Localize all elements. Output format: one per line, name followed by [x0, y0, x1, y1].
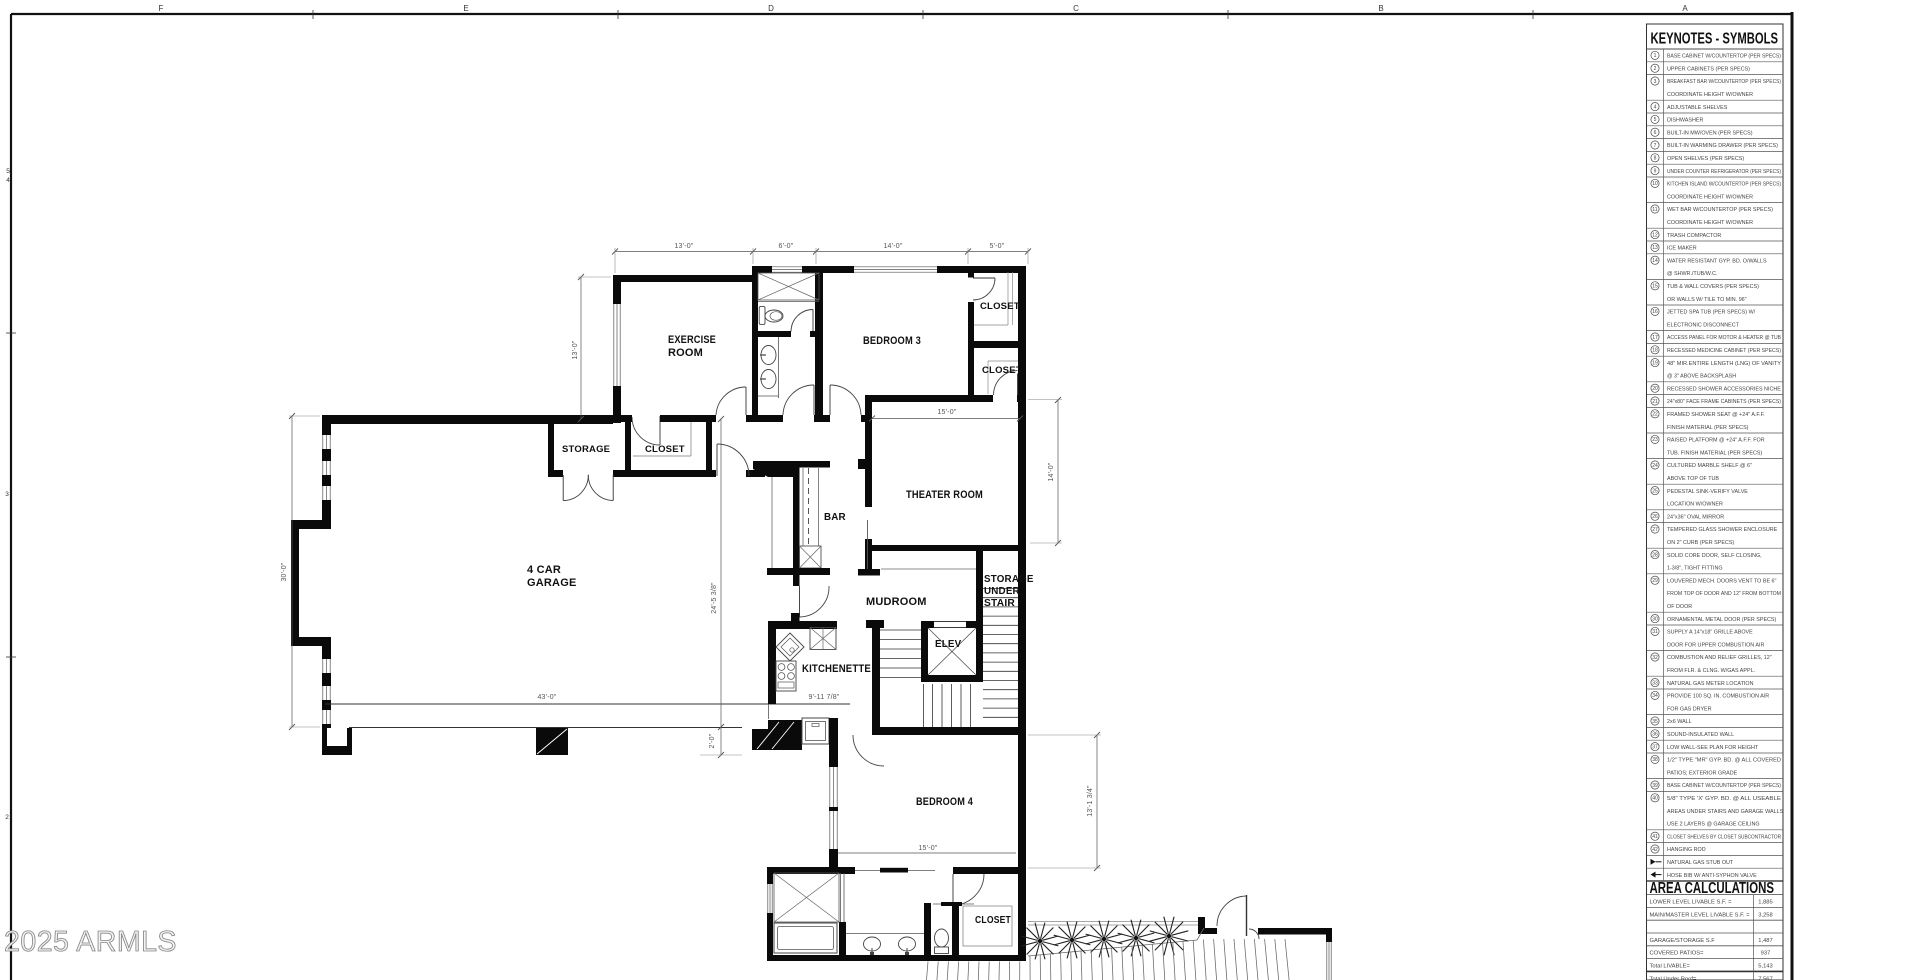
svg-text:5'-0": 5'-0": [990, 243, 1005, 250]
svg-text:24'-5 3/8": 24'-5 3/8": [711, 582, 718, 614]
svg-text:17: 17: [1652, 335, 1658, 341]
svg-text:11: 11: [1652, 207, 1657, 213]
svg-text:12: 12: [1652, 232, 1658, 238]
svg-text:PATIOS; EXTERIOR GRADE: PATIOS; EXTERIOR GRADE: [1667, 770, 1738, 776]
svg-text:39: 39: [1652, 783, 1658, 789]
svg-text:LOUVERED MECH. DOORS VENT TO B: LOUVERED MECH. DOORS VENT TO BE 6": [1667, 578, 1777, 584]
svg-text:13: 13: [1652, 245, 1658, 251]
svg-text:1: 1: [1654, 53, 1657, 59]
svg-text:OF DOOR: OF DOOR: [1667, 604, 1692, 610]
svg-text:ON 2" CURB (PER SPECS): ON 2" CURB (PER SPECS): [1667, 540, 1734, 546]
svg-text:LOCATION W/OWNER: LOCATION W/OWNER: [1667, 502, 1723, 508]
svg-text:ROOM: ROOM: [668, 347, 703, 359]
svg-text:E: E: [463, 4, 468, 13]
svg-text:43'-0": 43'-0": [537, 694, 556, 701]
svg-text:ADJUSTABLE SHELVES: ADJUSTABLE SHELVES: [1667, 105, 1728, 111]
svg-text:STAIR: STAIR: [984, 598, 1015, 609]
svg-text:B: B: [1378, 4, 1383, 13]
svg-text:4: 4: [1654, 104, 1657, 110]
svg-text:TUB. FINISH MATERIAL (PER SPEC: TUB. FINISH MATERIAL (PER SPECS): [1667, 450, 1762, 456]
svg-text:HANGING ROD: HANGING ROD: [1667, 847, 1706, 853]
svg-text:3,258: 3,258: [1758, 912, 1773, 918]
svg-text:A: A: [1682, 4, 1688, 13]
svg-text:29: 29: [1652, 578, 1658, 584]
svg-text:CLOSET SHELVES BY CLOSET SUBCO: CLOSET SHELVES BY CLOSET SUBCONTRACTOR: [1667, 834, 1781, 840]
svg-text:1/2" TYPE "MR" GYP. BD. @ ALL: 1/2" TYPE "MR" GYP. BD. @ ALL COVERED: [1667, 758, 1781, 764]
svg-text:FOR GAS DRYER: FOR GAS DRYER: [1667, 706, 1712, 712]
svg-text:ORNAMENTAL METAL DOOR (PER SPE: ORNAMENTAL METAL DOOR (PER SPECS): [1667, 617, 1777, 623]
svg-text:RAISED PLATFORM @ +24" A.F.F.: RAISED PLATFORM @ +24" A.F.F. FOR: [1667, 438, 1765, 444]
svg-text:NATURAL GAS METER LOCATION: NATURAL GAS METER LOCATION: [1667, 681, 1754, 687]
svg-text:STORAGE: STORAGE: [562, 444, 610, 455]
svg-text:24"x36" OVAL MIRROR: 24"x36" OVAL MIRROR: [1667, 514, 1724, 520]
svg-text:48" MIR.ENTIRE LENGTH (LNG) OF: 48" MIR.ENTIRE LENGTH (LNG) OF VANITY: [1667, 361, 1781, 367]
svg-text:38: 38: [1652, 757, 1658, 763]
svg-text:SOLID CORE DOOR, SELF CLOSING,: SOLID CORE DOOR, SELF CLOSING,: [1667, 553, 1762, 559]
svg-text:30'-0": 30'-0": [281, 562, 288, 581]
svg-text:UNDER COUNTER REFRIGERATOR (PE: UNDER COUNTER REFRIGERATOR (PER SPECS): [1667, 169, 1781, 175]
svg-text:Total LIVABLE=: Total LIVABLE=: [1650, 964, 1691, 970]
svg-text:5: 5: [1654, 117, 1657, 123]
svg-text:2'-0": 2'-0": [709, 733, 716, 748]
svg-text:KITCHEN ISLAND W/COUNTERTOP (P: KITCHEN ISLAND W/COUNTERTOP (PER SPECS): [1667, 182, 1781, 188]
svg-text:TUB & WALL COVERS (PER SPECS): TUB & WALL COVERS (PER SPECS): [1667, 284, 1759, 290]
svg-text:CLOSET: CLOSET: [975, 915, 1011, 926]
svg-text:GARAGE/STORAGE S.F: GARAGE/STORAGE S.F: [1650, 938, 1716, 944]
svg-text:15: 15: [1652, 284, 1658, 290]
svg-text:14'-0": 14'-0": [883, 243, 902, 250]
svg-text:2: 2: [5, 814, 9, 821]
svg-text:6: 6: [1654, 130, 1657, 136]
svg-text:5: 5: [6, 168, 10, 175]
svg-text:30: 30: [1652, 616, 1658, 622]
svg-text:MUDROOM: MUDROOM: [866, 596, 927, 608]
svg-text:20: 20: [1652, 386, 1658, 392]
svg-text:UPPER CABINETS (PER SPECS): UPPER CABINETS (PER SPECS): [1667, 66, 1750, 72]
svg-text:5,143: 5,143: [1758, 964, 1773, 970]
svg-text:TEMPERED GLASS SHOWER ENCLOSUR: TEMPERED GLASS SHOWER ENCLOSURE: [1667, 527, 1778, 533]
svg-text:4: 4: [6, 177, 10, 184]
svg-text:7,567: 7,567: [1758, 976, 1773, 980]
svg-text:41: 41: [1652, 834, 1658, 840]
svg-text:22: 22: [1652, 412, 1658, 418]
svg-text:OPEN SHELVES (PER SPECS): OPEN SHELVES (PER SPECS): [1667, 156, 1744, 162]
svg-text:CLOSET: CLOSET: [645, 444, 685, 455]
svg-text:BASE CABINET W/COUNTERTOP (PER: BASE CABINET W/COUNTERTOP (PER SPECS): [1667, 783, 1781, 789]
svg-text:COORDINATE HEIGHT W/OWNER: COORDINATE HEIGHT W/OWNER: [1667, 194, 1753, 200]
svg-text:AREAS UNDER STAIRS AND GARAGE: AREAS UNDER STAIRS AND GARAGE WALLS: [1667, 809, 1784, 815]
svg-text:SOUND-INSULATED WALL: SOUND-INSULATED WALL: [1667, 732, 1734, 738]
svg-text:13'-1 3/4": 13'-1 3/4": [1087, 785, 1094, 817]
svg-text:OR WALLS W/ TILE TO MIN. 96": OR WALLS W/ TILE TO MIN. 96": [1667, 297, 1747, 303]
svg-text:2025 ARMLS: 2025 ARMLS: [4, 926, 177, 958]
svg-text:COORDINATE HEIGHT W/OWNER: COORDINATE HEIGHT W/OWNER: [1667, 220, 1753, 226]
svg-text:6'-0": 6'-0": [779, 243, 794, 250]
svg-text:CLOSET: CLOSET: [982, 365, 1022, 376]
svg-text:RECESSED SHOWER ACCESSORIES NI: RECESSED SHOWER ACCESSORIES NICHE: [1667, 386, 1781, 392]
svg-text:PEDESTAL SINK-VERIFY VALVE: PEDESTAL SINK-VERIFY VALVE: [1667, 489, 1748, 495]
svg-text:9'-11 7/8": 9'-11 7/8": [809, 694, 840, 701]
svg-text:36: 36: [1652, 732, 1658, 738]
svg-text:4 CAR: 4 CAR: [527, 564, 561, 576]
svg-text:16: 16: [1652, 309, 1658, 315]
svg-text:@ 3" ABOVE BACKSPLASH: @ 3" ABOVE BACKSPLASH: [1667, 374, 1736, 380]
svg-text:24"x80" FACE FRAME CABINETS (P: 24"x80" FACE FRAME CABINETS (PER SPECS): [1667, 399, 1781, 405]
svg-text:25: 25: [1652, 488, 1658, 494]
svg-text:PROVIDE 100 SQ. IN. COMBUSTION: PROVIDE 100 SQ. IN. COMBUSTION AIR: [1667, 694, 1769, 700]
svg-text:F: F: [159, 4, 164, 13]
svg-text:COMBUSTION AND RELIEF GRILLES,: COMBUSTION AND RELIEF GRILLES, 12": [1667, 655, 1772, 661]
svg-text:TRASH COMPACTOR: TRASH COMPACTOR: [1667, 233, 1721, 239]
svg-text:1-3/8", TIGHT FITTING: 1-3/8", TIGHT FITTING: [1667, 566, 1723, 572]
svg-text:BEDROOM 4: BEDROOM 4: [916, 796, 974, 808]
svg-text:31: 31: [1652, 629, 1658, 635]
svg-text:1,487: 1,487: [1758, 938, 1773, 944]
svg-text:18: 18: [1652, 348, 1658, 354]
svg-text:35: 35: [1652, 719, 1658, 725]
svg-text:BUILT-IN MW/OVEN (PER SPECS): BUILT-IN MW/OVEN (PER SPECS): [1667, 130, 1753, 136]
svg-text:14: 14: [1652, 258, 1658, 264]
svg-text:7: 7: [1654, 143, 1657, 149]
svg-text:WET BAR W/COUNTERTOP (PER SPEC: WET BAR W/COUNTERTOP (PER SPECS): [1667, 207, 1773, 213]
svg-text:GARAGE: GARAGE: [527, 577, 576, 589]
svg-text:COORDINATE HEIGHT W/OWNER: COORDINATE HEIGHT W/OWNER: [1667, 92, 1753, 98]
svg-text:34: 34: [1652, 693, 1658, 699]
svg-text:5/8" TYPE 'X' GYP. BD. @ ALL U: 5/8" TYPE 'X' GYP. BD. @ ALL USEABLE: [1667, 796, 1781, 802]
svg-text:27: 27: [1652, 527, 1658, 533]
svg-text:DISHWASHER: DISHWASHER: [1667, 118, 1703, 124]
svg-text:15'-0": 15'-0": [918, 845, 937, 852]
svg-text:1,885: 1,885: [1758, 900, 1773, 906]
svg-text:LOWER LEVEL LIVABLE S.F. =: LOWER LEVEL LIVABLE S.F. =: [1650, 900, 1733, 906]
svg-text:JETTED SPA TUB (PER SPECS) W/: JETTED SPA TUB (PER SPECS) W/: [1667, 310, 1756, 316]
svg-text:33: 33: [1652, 680, 1658, 686]
svg-text:8: 8: [1654, 156, 1657, 162]
svg-text:DOOR FOR UPPER COMBUSTION AIR: DOOR FOR UPPER COMBUSTION AIR: [1667, 642, 1764, 648]
svg-text:BAR: BAR: [824, 512, 846, 523]
svg-text:SUPPLY A 14"x18" GRILLE ABOVE: SUPPLY A 14"x18" GRILLE ABOVE: [1667, 630, 1753, 636]
svg-text:937: 937: [1761, 951, 1771, 957]
svg-text:EXERCISE: EXERCISE: [668, 334, 716, 346]
svg-text:28: 28: [1652, 552, 1658, 558]
svg-text:ACCESS PANEL FOR MOTOR & HEATE: ACCESS PANEL FOR MOTOR & HEATER @ TUB: [1667, 335, 1781, 341]
svg-text:2: 2: [1654, 66, 1657, 72]
svg-text:@ SHWR./TUB/W.C.: @ SHWR./TUB/W.C.: [1667, 271, 1717, 277]
svg-text:42: 42: [1652, 847, 1658, 853]
svg-text:ELECTRONIC DISCONNECT: ELECTRONIC DISCONNECT: [1667, 322, 1740, 328]
svg-text:COVERED PATIOS=: COVERED PATIOS=: [1650, 951, 1705, 957]
svg-text:NATURAL GAS STUB OUT: NATURAL GAS STUB OUT: [1667, 860, 1734, 866]
svg-text:23: 23: [1652, 437, 1658, 443]
svg-text:RECESSED MEDICINE CABINET (PER: RECESSED MEDICINE CABINET (PER SPECS): [1667, 348, 1781, 354]
svg-text:3: 3: [5, 491, 9, 498]
svg-text:Total Under Roof=: Total Under Roof=: [1650, 976, 1697, 980]
svg-text:32: 32: [1652, 655, 1658, 661]
svg-text:24: 24: [1652, 463, 1658, 469]
svg-text:CLOSET: CLOSET: [980, 301, 1020, 312]
svg-text:CULTURED MARBLE SHELF @ 6": CULTURED MARBLE SHELF @ 6": [1667, 463, 1752, 469]
svg-text:13'-0": 13'-0": [674, 243, 693, 250]
svg-text:9: 9: [1654, 168, 1657, 174]
svg-text:37: 37: [1652, 744, 1658, 750]
svg-text:ELEV: ELEV: [935, 639, 962, 650]
svg-text:HOSE BIB W/ ANTI-SYPHON VALVE: HOSE BIB W/ ANTI-SYPHON VALVE: [1667, 873, 1757, 879]
svg-text:FRAMED SHOWER SEAT @ +24" A.F.: FRAMED SHOWER SEAT @ +24" A.F.F.: [1667, 412, 1765, 418]
svg-text:BUILT-IN WARMING DRAWER (PER S: BUILT-IN WARMING DRAWER (PER SPECS): [1667, 143, 1778, 149]
svg-text:21: 21: [1652, 399, 1658, 405]
svg-text:BEDROOM 3: BEDROOM 3: [863, 335, 921, 347]
svg-text:KITCHENETTE: KITCHENETTE: [802, 663, 871, 675]
svg-text:40: 40: [1652, 796, 1658, 802]
svg-text:ABOVE TOP OF TUB: ABOVE TOP OF TUB: [1667, 476, 1719, 482]
svg-text:26: 26: [1652, 514, 1658, 520]
svg-text:D: D: [768, 4, 774, 13]
svg-text:BASE CABINET W/COUNTERTOP (PER: BASE CABINET W/COUNTERTOP (PER SPECS): [1667, 54, 1781, 60]
svg-text:BREAKFAST BAR W/COUNTERTOP (PE: BREAKFAST BAR W/COUNTERTOP (PER SPECS): [1667, 79, 1781, 85]
svg-text:C: C: [1073, 4, 1079, 13]
svg-text:USE 2 LAYERS @ GARAGE CEILING: USE 2 LAYERS @ GARAGE CEILING: [1667, 822, 1760, 828]
svg-text:STORAGE: STORAGE: [984, 574, 1034, 585]
svg-text:UNDER: UNDER: [984, 586, 1020, 597]
svg-text:THEATER ROOM: THEATER ROOM: [906, 489, 983, 501]
svg-text:LOW WALL-SEE PLAN FOR HEIGHT: LOW WALL-SEE PLAN FOR HEIGHT: [1667, 745, 1759, 751]
svg-text:ICE MAKER: ICE MAKER: [1667, 246, 1697, 252]
svg-text:FROM TOP OF DOOR AND 12" FROM: FROM TOP OF DOOR AND 12" FROM BOTTOM: [1667, 591, 1781, 597]
svg-text:13'-0": 13'-0": [572, 340, 579, 359]
svg-text:3: 3: [1654, 79, 1657, 85]
svg-text:2x6 WALL: 2x6 WALL: [1667, 719, 1692, 725]
svg-text:14'-0": 14'-0": [1048, 462, 1055, 481]
svg-text:10: 10: [1652, 181, 1658, 187]
svg-text:FROM FLR. & CLNG. W/GAS APPL.: FROM FLR. & CLNG. W/GAS APPL.: [1667, 668, 1755, 674]
svg-text:15'-0": 15'-0": [937, 409, 956, 416]
svg-text:KEYNOTES - SYMBOLS: KEYNOTES - SYMBOLS: [1651, 31, 1779, 48]
svg-text:WATER RESISTANT GYP. BD. O/WAL: WATER RESISTANT GYP. BD. O/WALLS: [1667, 258, 1767, 264]
svg-text:FINISH MATERIAL (PER SPECS): FINISH MATERIAL (PER SPECS): [1667, 425, 1749, 431]
svg-text:19: 19: [1652, 360, 1658, 366]
svg-text:MAIN/MASTER LEVEL LIVABLE S.F.: MAIN/MASTER LEVEL LIVABLE S.F. =: [1650, 912, 1751, 918]
